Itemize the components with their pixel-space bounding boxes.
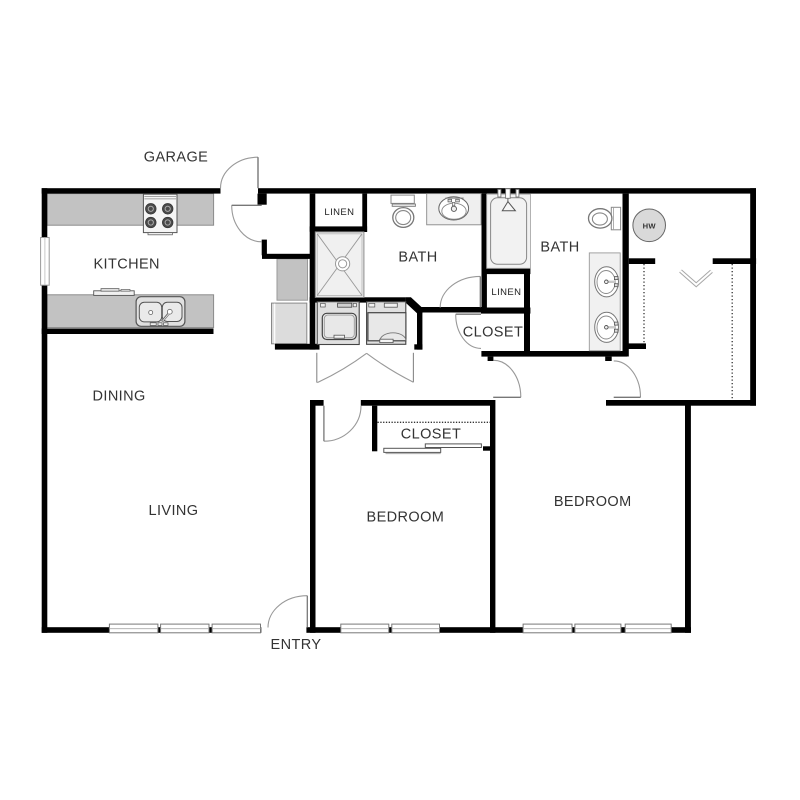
- svg-text:CLOSET: CLOSET: [463, 325, 523, 341]
- svg-text:ENTRY: ENTRY: [271, 637, 322, 653]
- svg-text:LINEN: LINEN: [324, 207, 354, 218]
- svg-text:BATH: BATH: [398, 249, 437, 265]
- svg-text:DINING: DINING: [93, 389, 146, 405]
- svg-text:GARAGE: GARAGE: [144, 150, 208, 166]
- svg-text:LIVING: LIVING: [149, 503, 199, 519]
- svg-text:BATH: BATH: [540, 239, 579, 255]
- svg-text:CLOSET: CLOSET: [401, 427, 461, 443]
- svg-text:BEDROOM: BEDROOM: [554, 494, 632, 510]
- svg-text:LINEN: LINEN: [491, 287, 521, 298]
- svg-text:KITCHEN: KITCHEN: [93, 257, 159, 273]
- svg-text:BEDROOM: BEDROOM: [367, 509, 445, 525]
- svg-text:HW: HW: [643, 221, 657, 230]
